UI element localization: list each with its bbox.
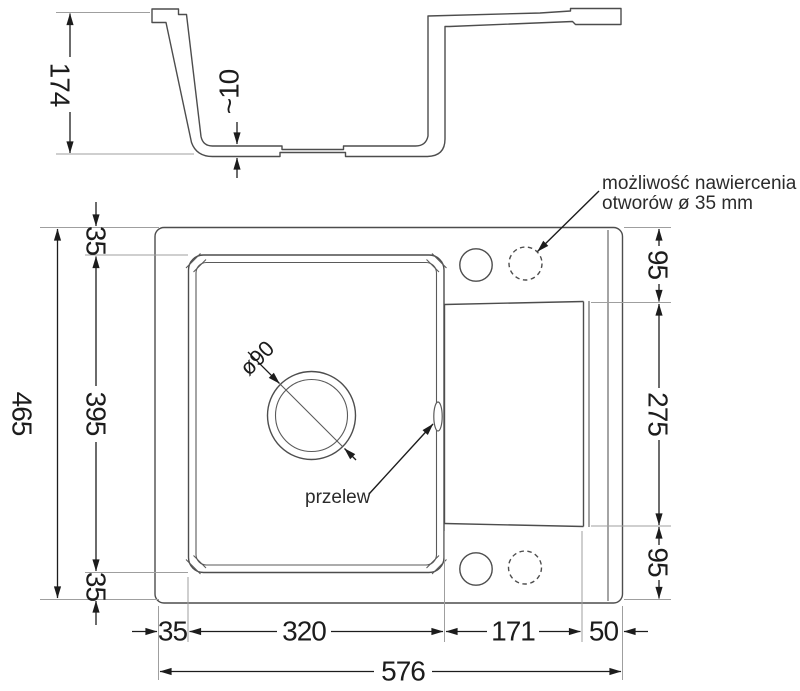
drainer-top-edge (445, 302, 584, 305)
dim-35-bottom-label: 35 (81, 572, 112, 602)
drainer-board (445, 301, 590, 527)
dim-b35-label: 35 (158, 616, 188, 647)
drain-dia-line (281, 385, 343, 447)
bowl-inner-edge (196, 263, 437, 566)
faucet-hole-top (460, 249, 492, 281)
dim-right-bottom-95: 95 (643, 527, 674, 599)
overflow-leader-arrow (369, 424, 433, 494)
optional-hole-top (509, 247, 542, 280)
dim-10-label: ~10 (214, 69, 245, 114)
dim-bowl-height-395: 395 (81, 257, 112, 572)
dim-bottom-171: 171 (446, 616, 581, 647)
dim-35-top-label: 35 (81, 226, 112, 256)
overflow-note: przelew (305, 424, 433, 508)
cross-section-view: 174 ~10 (45, 9, 622, 179)
extension-lines (40, 228, 671, 681)
dim-bottom-35: 35 (132, 616, 187, 647)
dim-thickness-10: ~10 (214, 69, 245, 178)
dim-95-top-label: 95 (643, 250, 674, 280)
faucet-hole-bottom (460, 553, 492, 585)
dim-depth-174: 174 (45, 14, 76, 154)
dim-95-bottom-label: 95 (643, 547, 674, 577)
optional-hole-bottom (509, 551, 542, 584)
dim-right-top-95: 95 (643, 229, 674, 302)
drawing-canvas: 174 ~10 (0, 0, 800, 691)
drain-dia-arrow-lower (345, 449, 357, 461)
bowl-outer-edge (189, 255, 445, 573)
dim-576-label: 576 (381, 656, 425, 687)
drill-note-leader-arrow (538, 191, 600, 252)
dim-171-label: 171 (491, 616, 535, 647)
sink-technical-drawing: 174 ~10 (0, 0, 800, 691)
drain-diameter-label: ø90 (235, 336, 279, 380)
dim-174-label: 174 (45, 63, 76, 107)
sink-outline (155, 228, 623, 604)
overflow-label: przelew (305, 487, 371, 508)
dim-bottom-50: 50 (589, 616, 648, 647)
dim-right-middle-275: 275 (643, 304, 674, 525)
drill-note: możliwość nawiercenia otworów ø 35 mm (538, 173, 797, 252)
dim-total-height-465: 465 (7, 229, 58, 598)
plan-view: ø90 (155, 228, 623, 604)
dim-465-label: 465 (7, 392, 38, 436)
dim-320-label: 320 (282, 616, 326, 647)
dim-left-top-35: 35 (81, 202, 112, 255)
dim-left-bottom-35: 35 (81, 572, 112, 625)
dim-275-label: 275 (643, 392, 674, 436)
dim-50-label: 50 (589, 616, 619, 647)
drill-note-line2: otworów ø 35 mm (602, 193, 753, 214)
drill-note-line1: możliwość nawiercenia (602, 173, 797, 194)
drainer-bottom-edge (445, 524, 584, 527)
overflow-slot (434, 402, 442, 431)
dim-total-width-576: 576 (160, 656, 621, 687)
bowl-corner-chamfers (186, 254, 447, 575)
drain: ø90 (235, 336, 356, 460)
dim-bottom-320: 320 (190, 616, 444, 647)
dim-395-label: 395 (81, 392, 112, 436)
